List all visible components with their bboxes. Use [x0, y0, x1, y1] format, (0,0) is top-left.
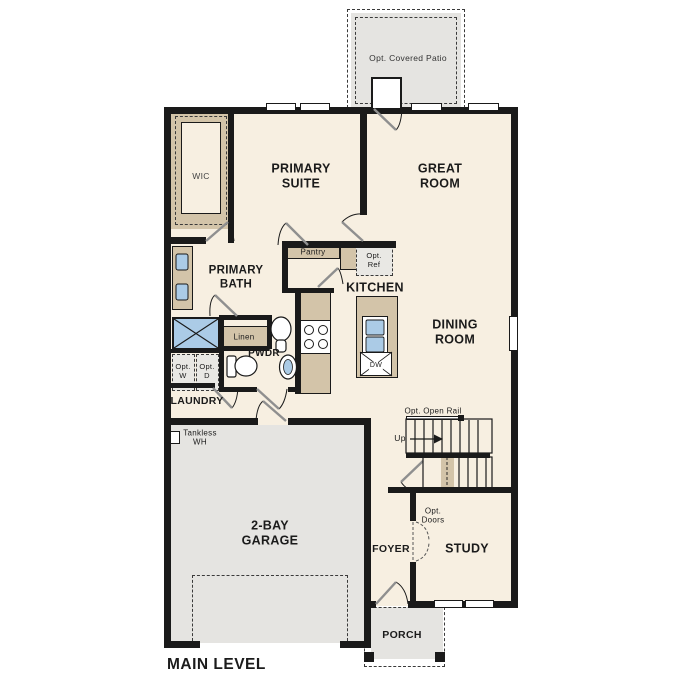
- wall: [288, 418, 371, 425]
- stair-landing-strip: [441, 457, 454, 489]
- wall: [164, 107, 518, 114]
- window-dining: [509, 316, 518, 351]
- dw-label: DW: [369, 362, 383, 370]
- up-label: Up: [394, 433, 405, 443]
- patio-label: Opt. Covered Patio: [369, 53, 447, 63]
- shower: [172, 317, 220, 350]
- wall: [219, 387, 257, 392]
- wall: [288, 387, 296, 392]
- opt-dryer-label: Opt. D: [196, 363, 218, 381]
- wall: [164, 237, 206, 244]
- primary-bath-label: PRIMARY BATH: [196, 264, 276, 291]
- pwdr-label: PWDR: [248, 348, 280, 360]
- porch-post-right: [435, 652, 445, 662]
- wall: [282, 241, 396, 248]
- floor-plan: Opt. Covered Patio WIC PRIMARY SUITE GRE…: [0, 0, 687, 687]
- wall: [164, 107, 171, 648]
- wall: [219, 315, 271, 320]
- window-study: [434, 600, 463, 608]
- wall: [408, 601, 518, 608]
- stair-newel: [458, 415, 464, 421]
- bath-vanity-counter: [172, 246, 193, 310]
- porch-label: PORCH: [382, 629, 421, 641]
- wic-floor: [181, 122, 221, 214]
- garage-door-outline: [192, 575, 348, 641]
- stair-open-rail: [406, 416, 461, 420]
- garage-label: 2-BAY GARAGE: [230, 518, 310, 548]
- window: [300, 103, 330, 111]
- wall: [511, 107, 518, 608]
- linen-label: Linen: [233, 332, 254, 341]
- window-study: [465, 600, 494, 608]
- wall: [164, 641, 200, 648]
- stove: [300, 320, 331, 354]
- wall: [295, 288, 301, 394]
- dining-room-label: DINING ROOM: [425, 317, 485, 347]
- opt-doors-label: Opt. Doors: [416, 507, 450, 526]
- opt-ref-label: Opt. Ref: [361, 252, 387, 270]
- kitchen-label: KITCHEN: [346, 281, 404, 296]
- wall: [228, 107, 234, 229]
- wall: [282, 241, 288, 293]
- porch-post-left: [364, 652, 374, 662]
- pantry-label: Pantry: [301, 247, 326, 256]
- wall: [164, 383, 215, 388]
- laundry-label: LAUNDRY: [170, 395, 223, 407]
- wall: [410, 562, 416, 601]
- wall: [164, 349, 219, 353]
- wall: [388, 487, 518, 493]
- wall: [219, 316, 224, 391]
- island-sink-frame: [362, 316, 388, 354]
- wall: [360, 107, 367, 215]
- wall: [406, 453, 490, 458]
- window: [468, 103, 499, 111]
- opt-washer-label: Opt. W: [172, 363, 194, 381]
- wic-label: WIC: [192, 171, 209, 181]
- foyer-label: FOYER: [372, 543, 410, 555]
- opt-open-rail-label: Opt. Open Rail: [404, 406, 461, 415]
- great-room-label: GREAT ROOM: [410, 161, 470, 191]
- wall: [364, 418, 371, 648]
- wall: [267, 315, 272, 349]
- wall: [228, 229, 234, 243]
- wall: [164, 418, 258, 425]
- main-level-title: MAIN LEVEL: [167, 656, 266, 674]
- study-label: STUDY: [445, 542, 489, 557]
- wall: [282, 288, 334, 293]
- patio-door: [371, 77, 402, 110]
- window: [266, 103, 296, 111]
- tankless-wh-label: Tankless WH: [177, 429, 223, 448]
- primary-suite-label: PRIMARY SUITE: [256, 161, 346, 191]
- window: [411, 103, 442, 111]
